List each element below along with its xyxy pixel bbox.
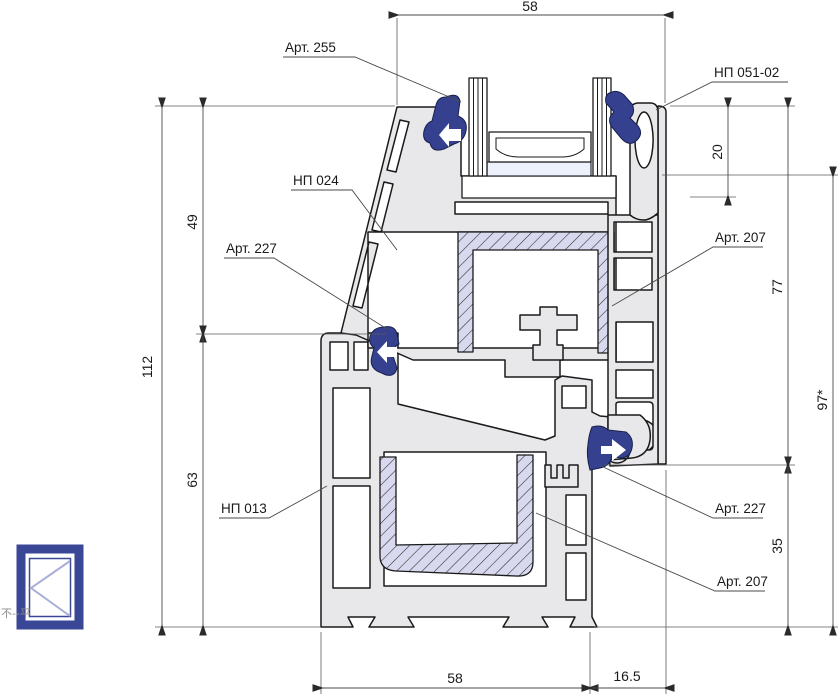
label-frame-profile: НП 013 xyxy=(221,501,267,516)
glazing-support-plate xyxy=(462,176,616,198)
steel-reinforcement-sash xyxy=(458,232,613,353)
label-gasket-art255: Арт. 255 xyxy=(285,40,336,55)
frame-comb-detail xyxy=(545,465,578,487)
label-glazing-bead: НП 051-02 xyxy=(714,65,779,80)
label-gasket-art227-left: Арт. 227 xyxy=(226,241,277,256)
window-opening-icon: 不--平 xyxy=(1,549,79,625)
dim-value-right-upper: 77 xyxy=(769,279,785,295)
dim-value-bottom-offset: 16.5 xyxy=(613,668,640,684)
part-labels: Арт. 255 НП 051-02 НП 024 Арт. 227 НП 01… xyxy=(219,40,788,591)
dim-value-right-lower: 35 xyxy=(769,538,785,554)
dim-value-left-upper: 49 xyxy=(184,214,200,230)
sash-right-wall xyxy=(658,106,666,464)
glazing-sealant-strip xyxy=(487,162,591,176)
label-sash-profile: НП 024 xyxy=(293,173,339,188)
label-steel-sash: Арт. 207 xyxy=(715,230,766,245)
frame-profile-np013 xyxy=(321,333,656,627)
label-steel-frame: Арт. 207 xyxy=(717,574,768,589)
dim-value-top-width: 58 xyxy=(522,0,538,14)
dim-value-right-total: 97* xyxy=(814,389,830,411)
profile-section-drawing: 58 112 49 63 20 77 35 97* 58 16.5 Арт. 2… xyxy=(0,0,840,700)
label-gasket-art227-right: Арт. 227 xyxy=(715,501,766,516)
frame-profile-shape xyxy=(321,333,656,627)
dim-value-left-lower: 63 xyxy=(184,472,200,488)
technical-drawing-canvas: 58 112 49 63 20 77 35 97* 58 16.5 Арт. 2… xyxy=(0,0,840,700)
glazing-bead-shape xyxy=(630,103,658,220)
dim-value-left-total: 112 xyxy=(139,356,155,379)
icon-watermark-text: 不--平 xyxy=(1,607,31,620)
glass-pane-left xyxy=(469,78,487,176)
dim-value-bottom-width: 58 xyxy=(447,670,463,686)
glass-pane-right xyxy=(593,78,611,176)
glazing-unit xyxy=(462,78,616,198)
dim-value-bead-height: 20 xyxy=(709,144,725,160)
steel-reinforcement-frame xyxy=(380,455,533,576)
